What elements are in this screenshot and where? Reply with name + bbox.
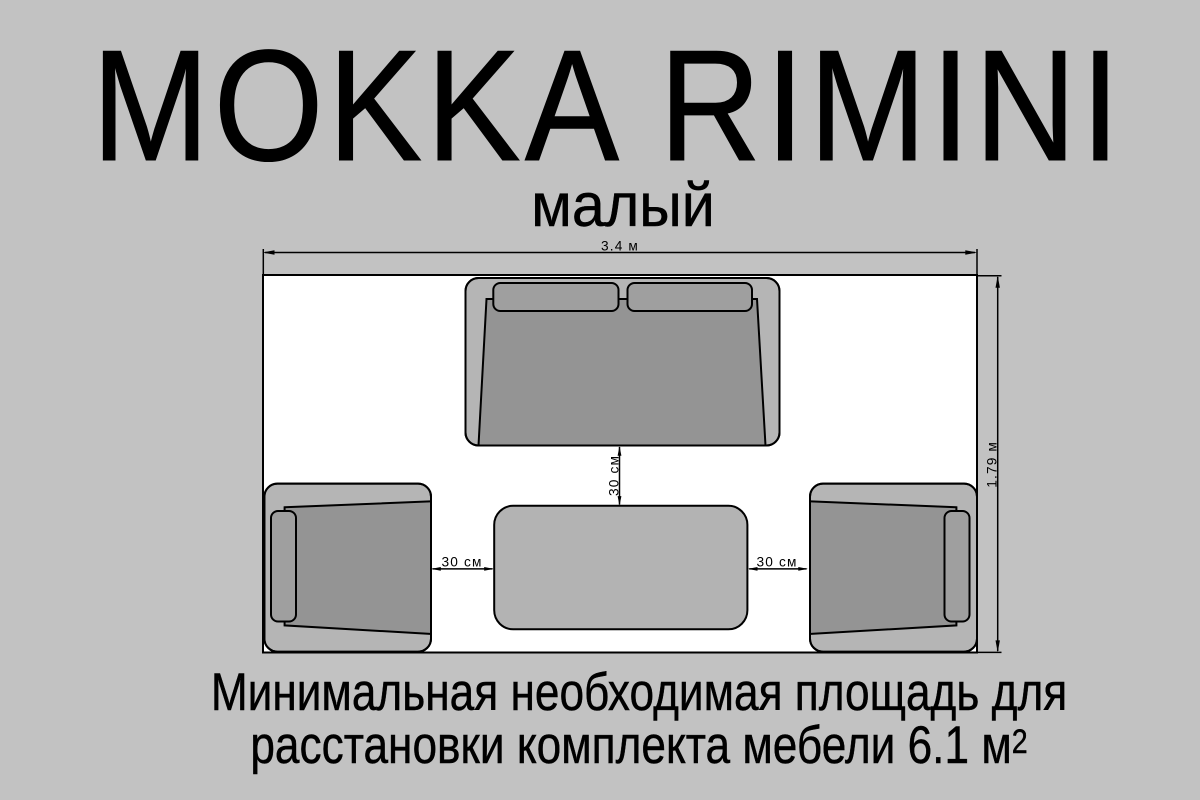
svg-text:30 см: 30 см [606,455,621,496]
svg-text:3.4 м: 3.4 м [601,238,639,253]
svg-text:30 см: 30 см [441,555,482,570]
svg-text:30 см: 30 см [756,555,797,570]
svg-text:1.79 м: 1.79 м [985,441,1000,488]
